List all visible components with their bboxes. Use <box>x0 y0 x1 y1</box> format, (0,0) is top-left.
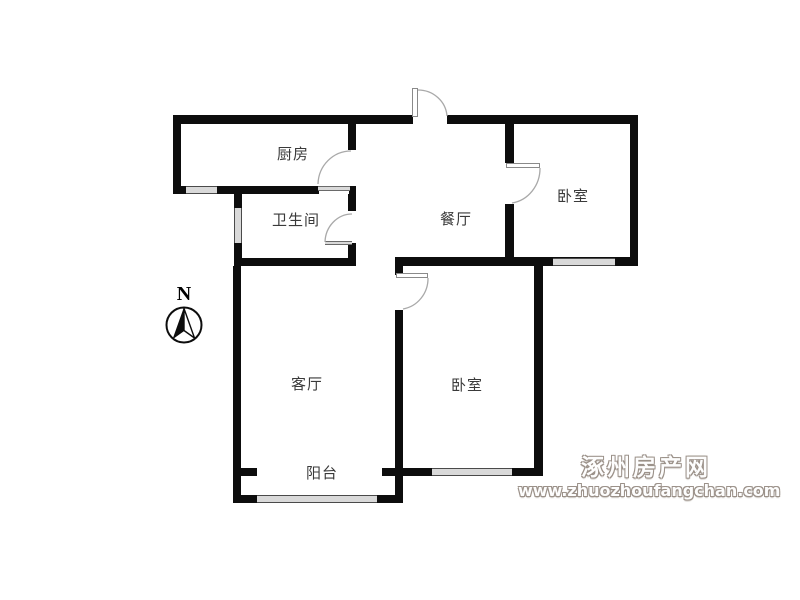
north-compass-icon <box>161 304 207 346</box>
balcony-label: 阳台 <box>292 465 352 481</box>
bedroom-top-door-arc <box>512 168 540 203</box>
dining-label: 餐厅 <box>426 211 486 227</box>
bathroom-label: 卫生间 <box>256 212 336 228</box>
watermark-site-url: www.zhuozhoufangchan.com <box>518 481 774 500</box>
bedroom-top-label: 卧室 <box>543 188 603 204</box>
bedroom-bottom-label: 卧室 <box>437 377 497 393</box>
watermark: 涿州房产网 www.zhuozhoufangchan.com <box>518 456 774 500</box>
entrance-door-arc <box>418 90 447 116</box>
north-label: N <box>161 284 207 304</box>
bedroom-bottom-door-arc <box>403 278 428 309</box>
door-arcs-layer <box>0 0 800 600</box>
north-compass: N <box>161 284 207 348</box>
watermark-site-name: 涿州房产网 <box>518 456 774 481</box>
kitchen-label: 厨房 <box>263 146 323 162</box>
floor-plan: 厨房 卫生间 餐厅 卧室 客厅 卧室 阳台 N 涿州房产网 www.zhuozh… <box>0 0 800 600</box>
living-label: 客厅 <box>277 376 337 392</box>
